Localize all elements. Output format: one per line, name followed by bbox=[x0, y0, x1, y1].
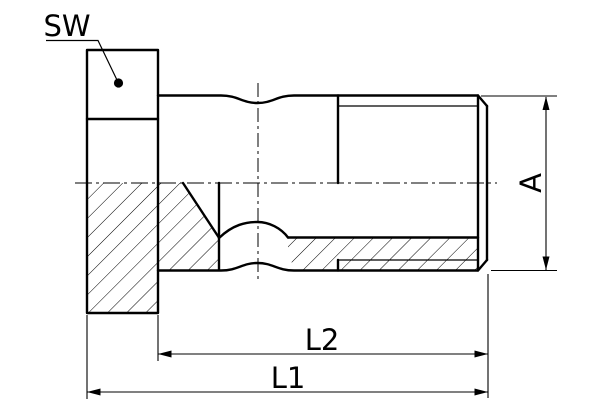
dim-l1-arrow-left bbox=[87, 389, 101, 396]
section-hatching bbox=[87, 183, 478, 313]
dim-l2-arrow-right bbox=[475, 351, 489, 358]
hatch-head-section bbox=[87, 183, 219, 313]
hatch-wall-section bbox=[288, 238, 478, 271]
body-top-edge bbox=[158, 96, 487, 107]
sw-label: SW bbox=[43, 9, 90, 43]
l1-label: L1 bbox=[271, 361, 306, 395]
dim-a-arrow-up bbox=[543, 97, 550, 111]
l2-label: L2 bbox=[305, 323, 340, 357]
cross-hole-bore-arc bbox=[219, 222, 288, 238]
sw-leader-line bbox=[46, 41, 117, 81]
a-label: A bbox=[514, 173, 548, 193]
sw-leader-dot bbox=[114, 78, 123, 87]
dim-a-arrow-down bbox=[543, 257, 550, 271]
drawing-canvas: SW A L2 L1 bbox=[0, 0, 600, 400]
sw-leader: SW bbox=[43, 9, 123, 88]
dim-l1-arrow-right bbox=[475, 389, 489, 396]
technical-drawing: SW A L2 L1 bbox=[0, 0, 600, 400]
dim-l2-arrow-left bbox=[158, 351, 172, 358]
